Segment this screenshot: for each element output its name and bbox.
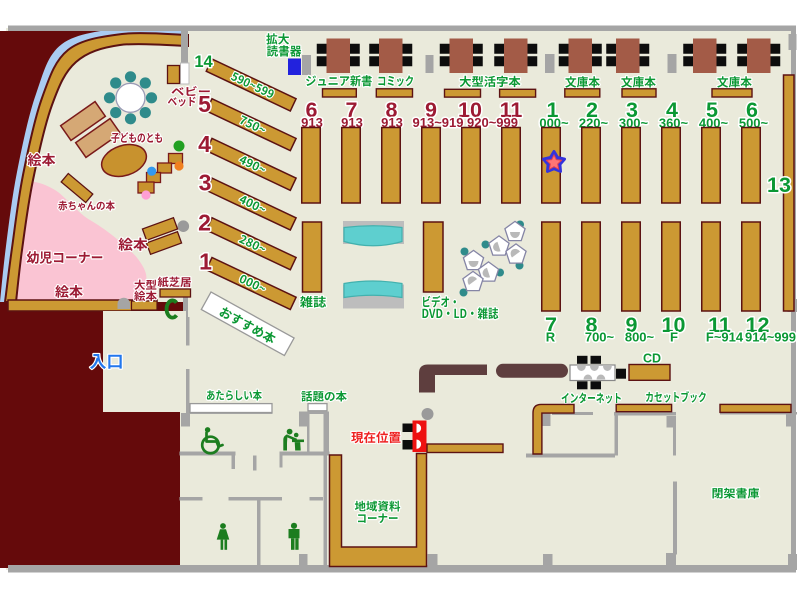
svg-text:R: R: [546, 330, 556, 345]
svg-text:700~: 700~: [585, 330, 615, 345]
svg-text:F: F: [670, 330, 678, 345]
svg-text:CD: CD: [643, 352, 661, 366]
svg-text:5: 5: [198, 91, 211, 117]
svg-text:4: 4: [198, 131, 211, 157]
svg-text:2: 2: [198, 210, 211, 236]
svg-text:800~: 800~: [625, 330, 655, 345]
svg-text:914~999: 914~999: [745, 330, 796, 345]
svg-text:3: 3: [199, 170, 212, 196]
svg-text:F~914: F~914: [706, 330, 744, 345]
svg-text:14: 14: [194, 53, 213, 71]
svg-text:13: 13: [767, 173, 791, 197]
svg-text:1: 1: [199, 249, 212, 275]
